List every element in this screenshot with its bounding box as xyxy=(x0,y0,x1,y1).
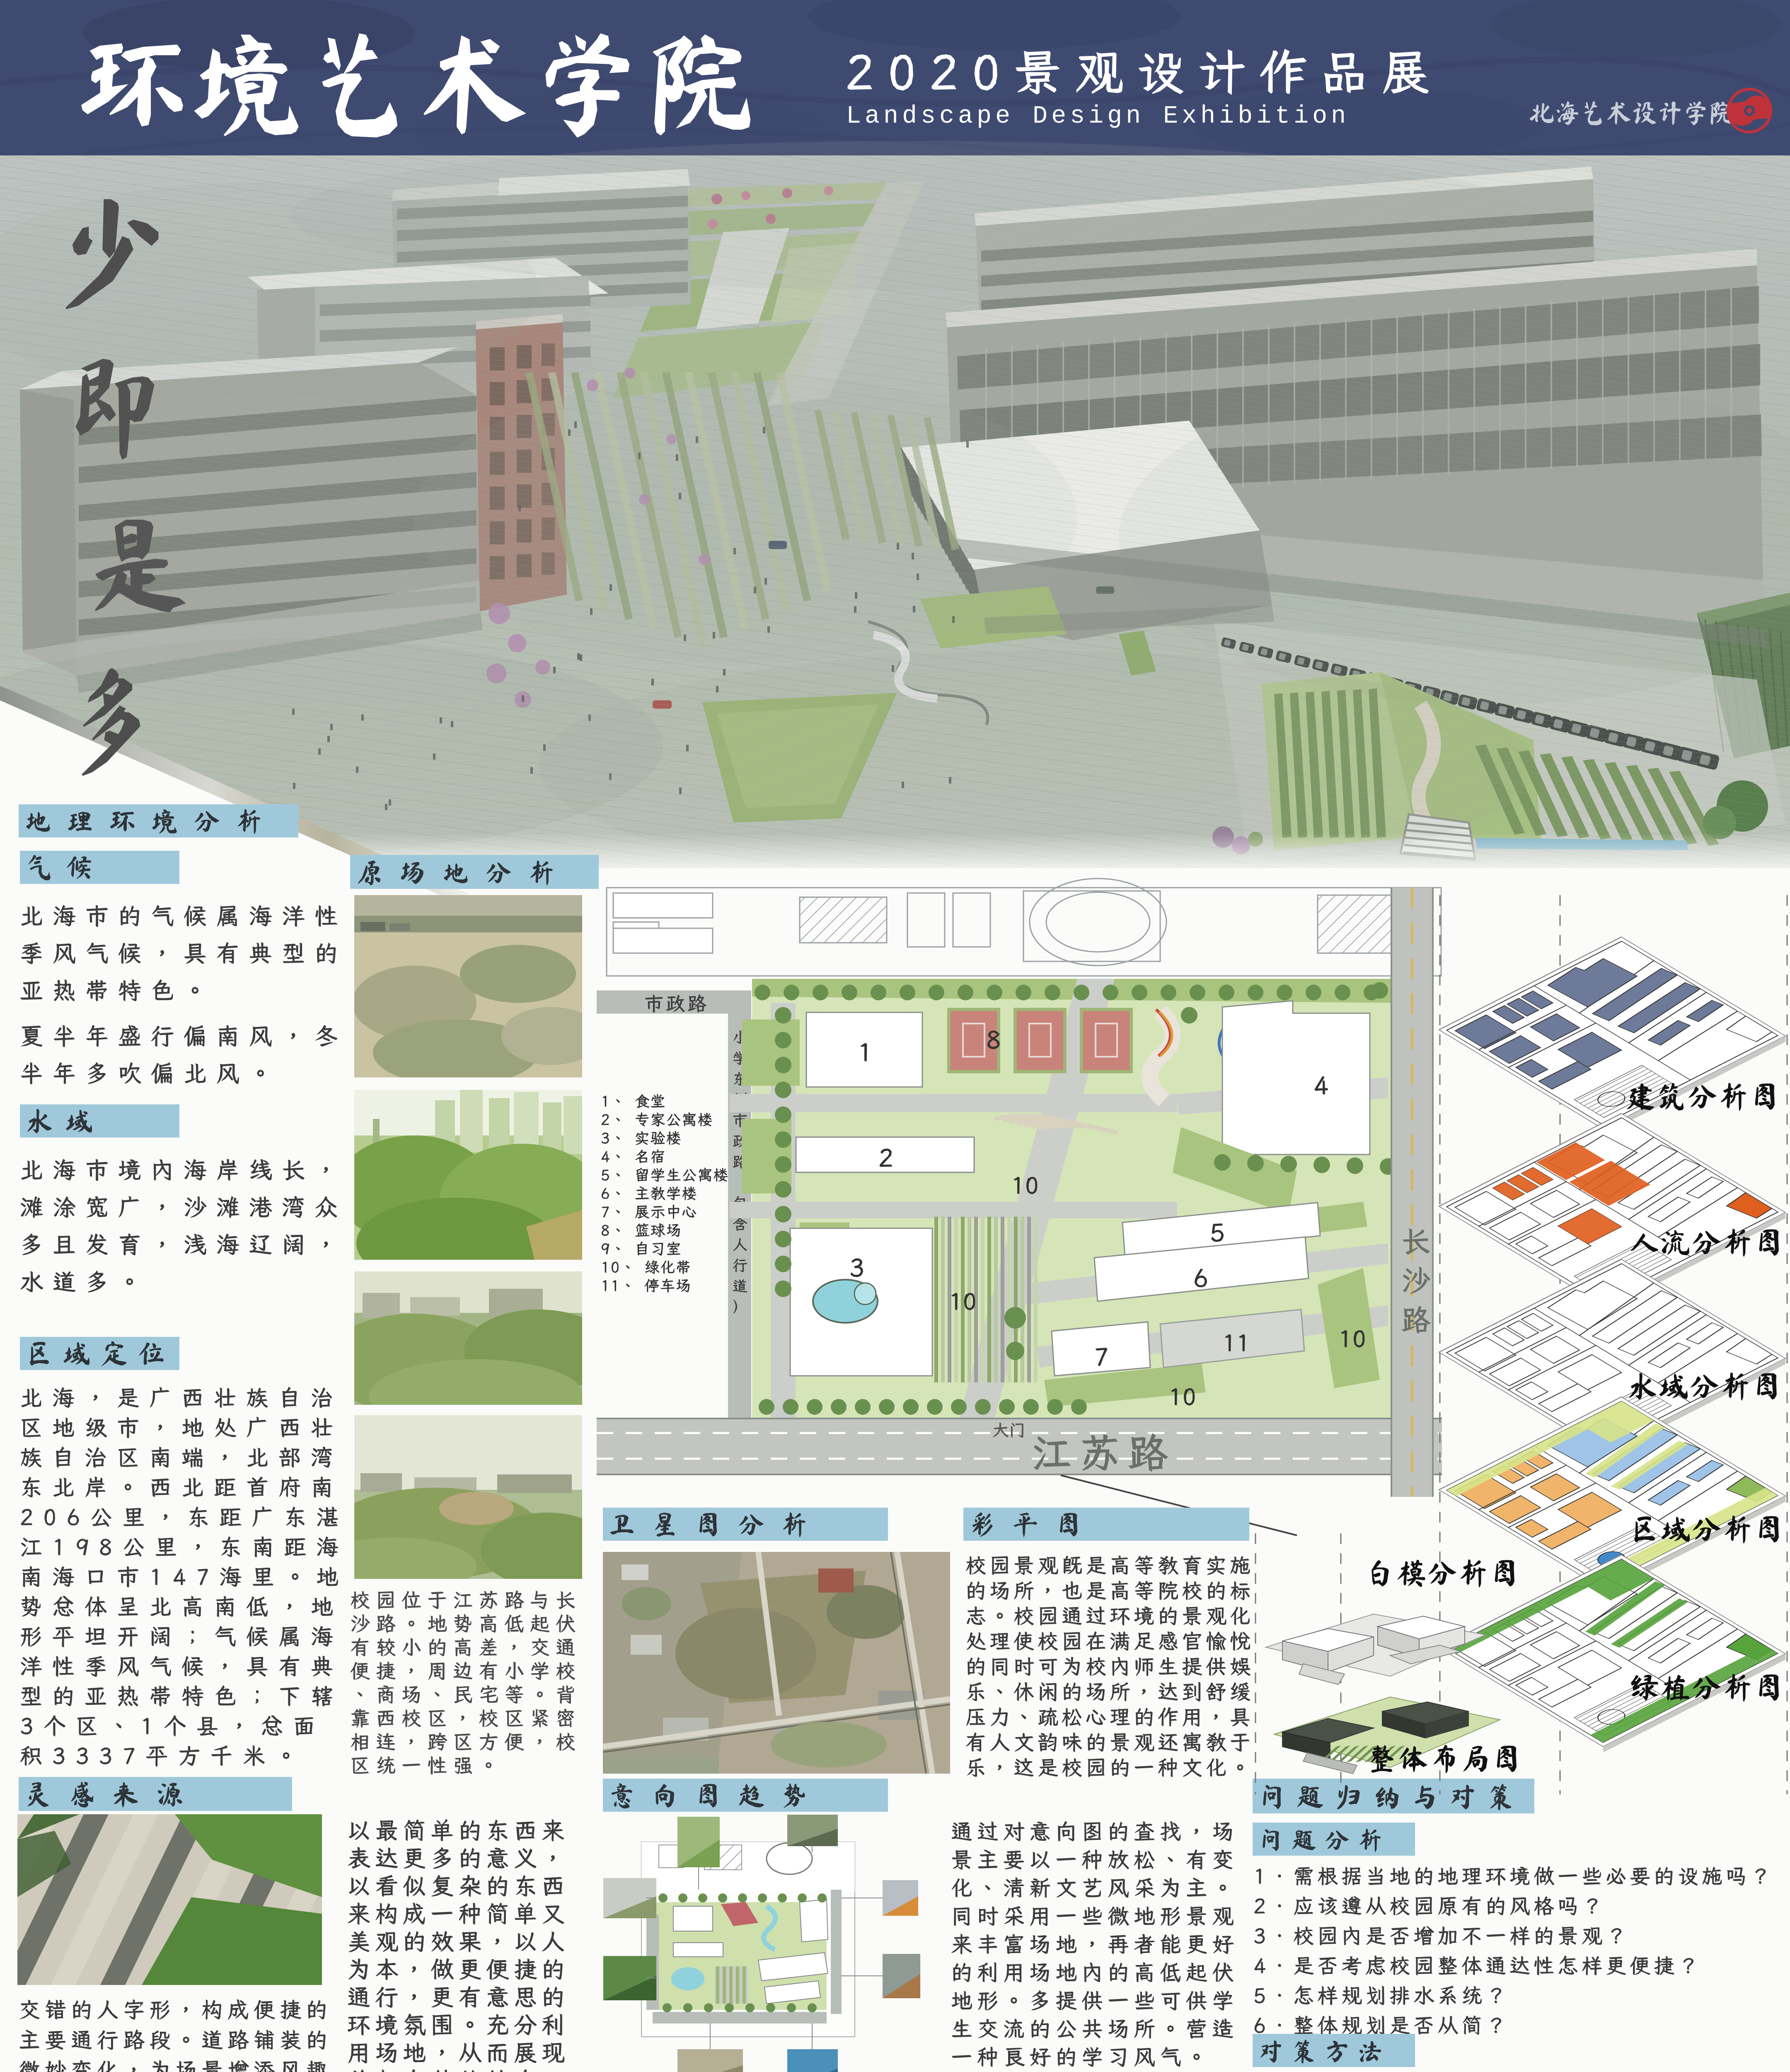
svg-text:Landscape Design Exhibition: Landscape Design Exhibition xyxy=(846,102,1350,131)
